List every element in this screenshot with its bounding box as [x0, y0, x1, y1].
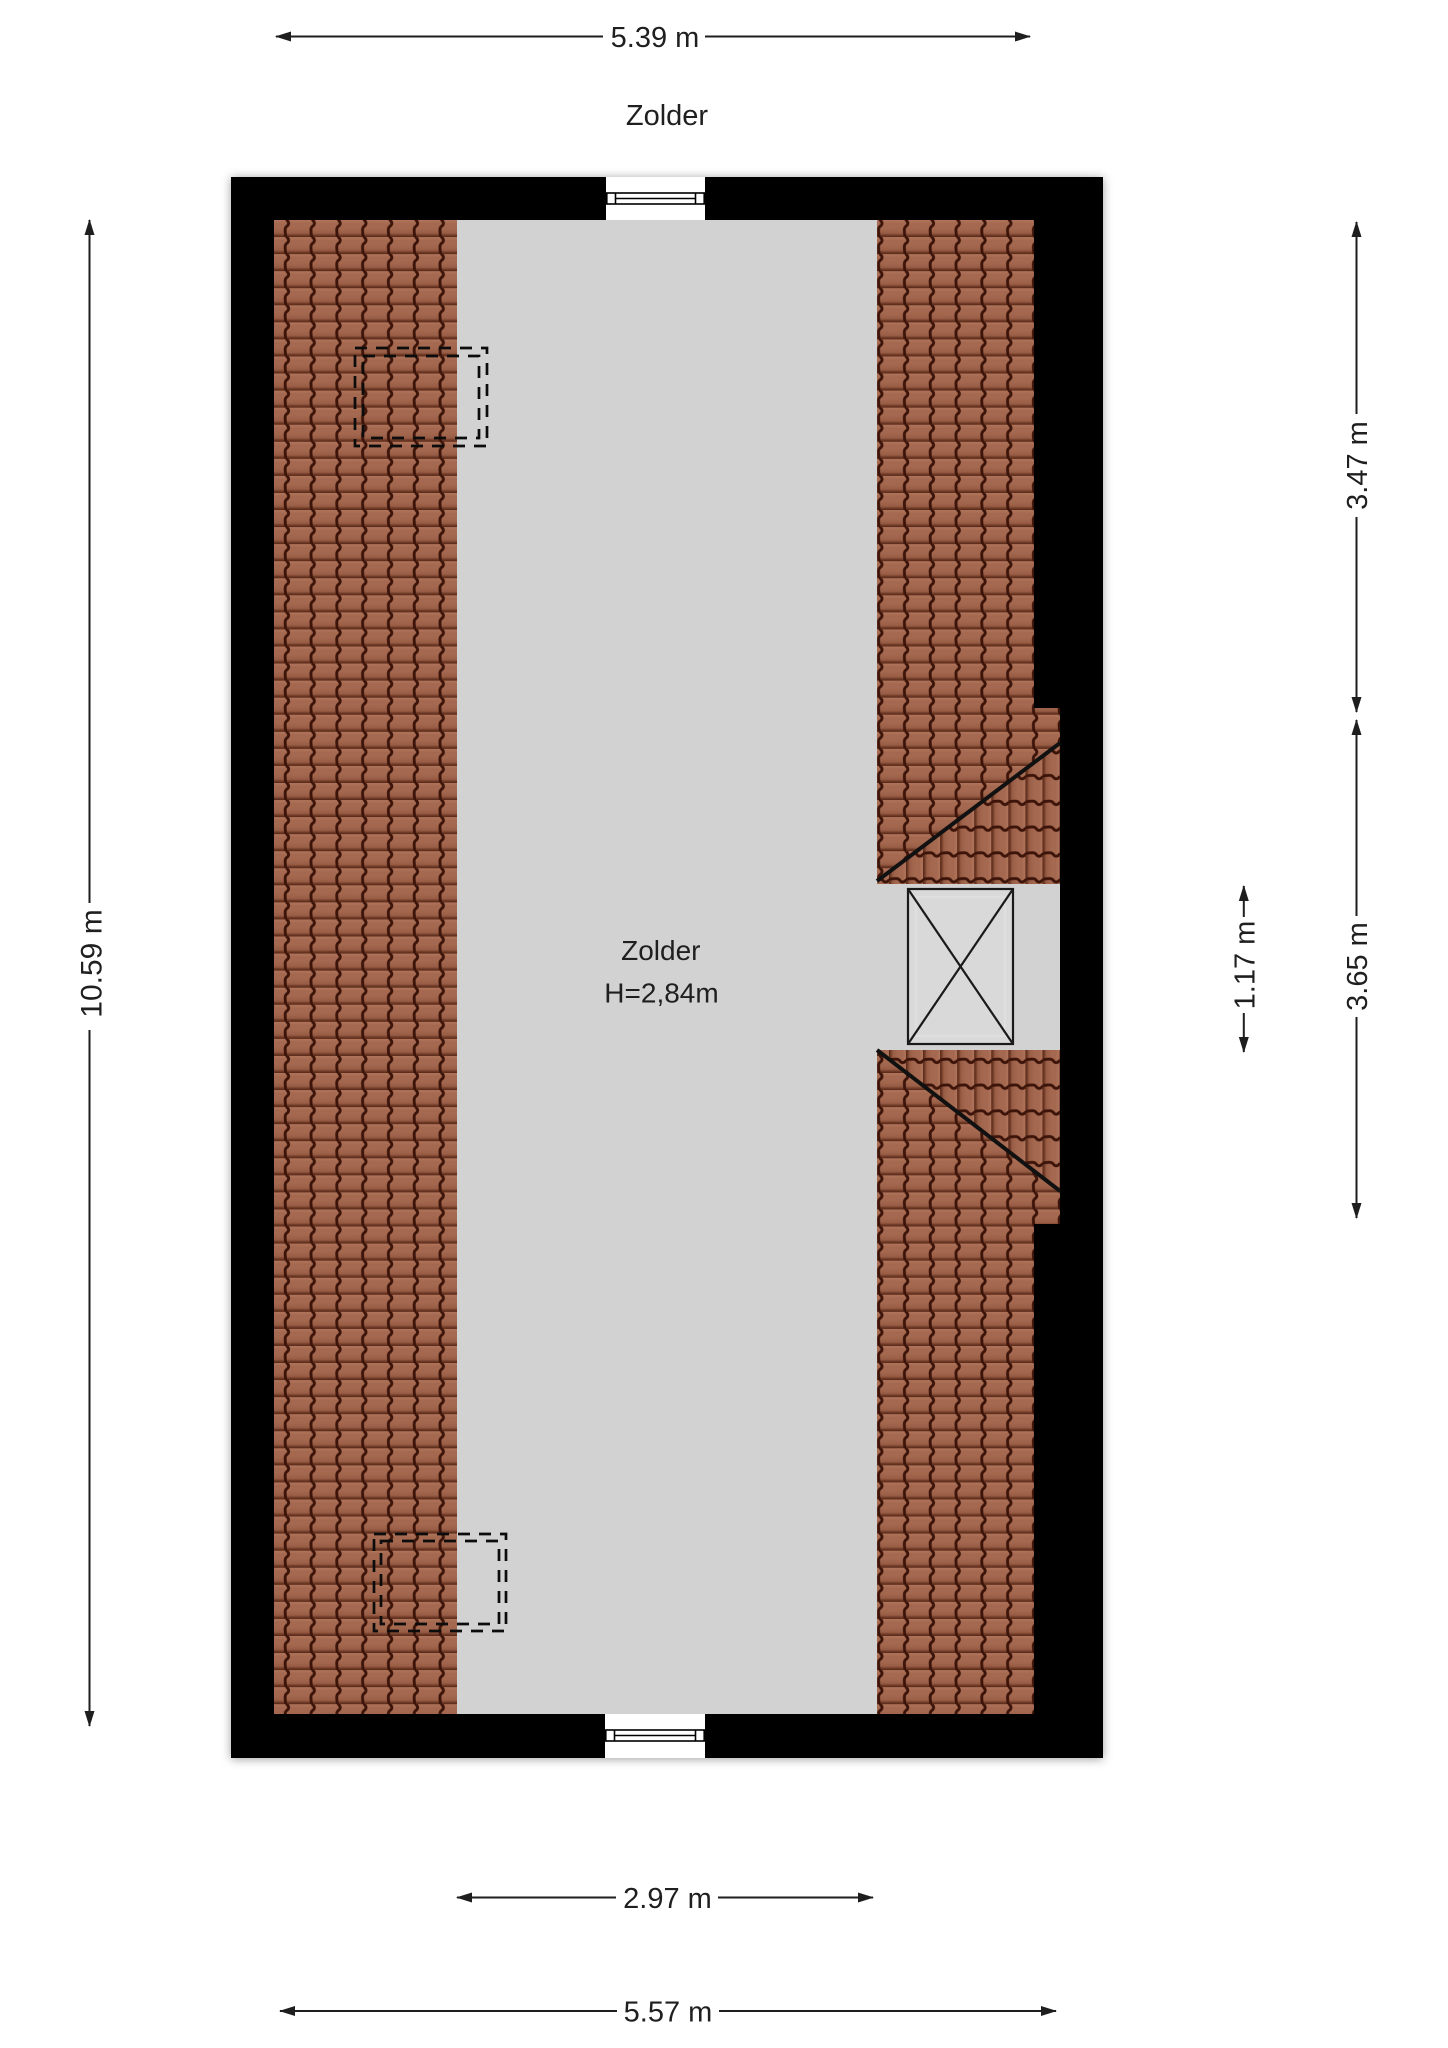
svg-text:Zolder: Zolder [626, 100, 709, 132]
svg-text:Zolder: Zolder [621, 935, 700, 966]
svg-text:5.57 m: 5.57 m [624, 1997, 713, 2029]
svg-text:H=2,84m: H=2,84m [604, 978, 718, 1009]
svg-text:3.65 m: 3.65 m [1342, 922, 1374, 1011]
svg-text:1.17 m: 1.17 m [1230, 921, 1262, 1010]
svg-text:3.47 m: 3.47 m [1342, 421, 1374, 510]
svg-text:2.97 m: 2.97 m [623, 1883, 712, 1915]
svg-text:5.39 m: 5.39 m [611, 22, 700, 54]
svg-text:10.59 m: 10.59 m [76, 909, 109, 1017]
